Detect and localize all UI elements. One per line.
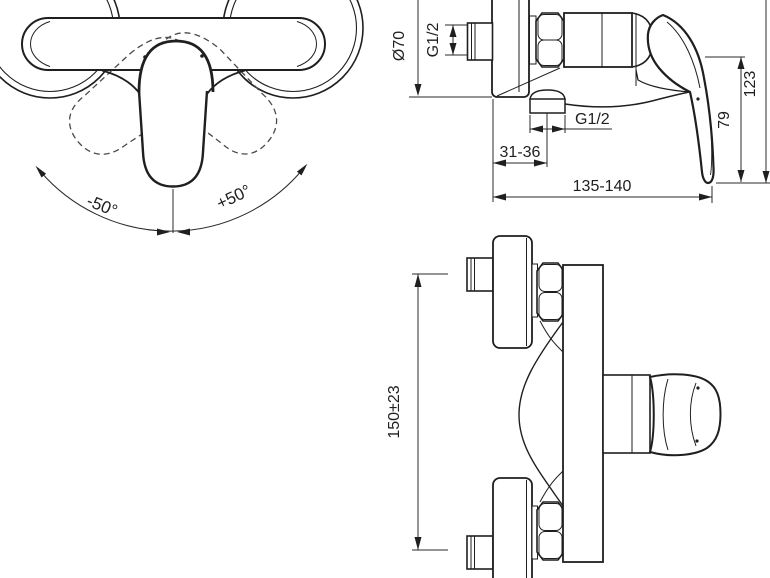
- inlet-thread: [468, 23, 493, 60]
- shower-mixer-technical-drawing: -50° +50°: [0, 0, 770, 578]
- top-view: 150±23: [386, 236, 721, 578]
- dim-label-overall-height: 123: [742, 71, 759, 98]
- front-view: -50° +50°: [0, 0, 363, 236]
- handle-dot: [696, 97, 699, 100]
- lower-connection: [467, 478, 564, 578]
- handle-screw-dot-right: [200, 54, 204, 58]
- technical-drawing-page: -50° +50°: [0, 0, 770, 578]
- handle-screw-dot-left: [143, 55, 147, 59]
- dim-label-connection-spacing: 150±23: [386, 385, 403, 438]
- dim-label-outlet-thread: G1/2: [575, 111, 610, 128]
- lever-handle-top: [603, 374, 721, 455]
- upper-connection: [467, 236, 564, 348]
- dim-label-handle-projection: 79: [716, 111, 733, 129]
- top-view-dimensions: 150±23: [386, 274, 448, 550]
- union-nut-side: [530, 13, 565, 67]
- dim-label-escutcheon-diameter: Ø70: [391, 31, 408, 61]
- dim-label-wall-to-outlet: 31-36: [500, 144, 541, 161]
- dim-label-inlet-thread: G1/2: [425, 23, 442, 58]
- handle-top-dot-1: [696, 386, 699, 389]
- shower-outlet: [530, 90, 565, 113]
- escutcheon-side: [492, 0, 529, 97]
- side-view: Ø70 G1/2 G1/2 31-36 135-140 79: [391, 0, 770, 203]
- label-angle-left: -50°: [84, 191, 120, 220]
- label-angle-right: +50°: [214, 181, 254, 213]
- dim-label-overall-width: 135-140: [573, 178, 632, 195]
- handle-top-dot-2: [695, 439, 698, 442]
